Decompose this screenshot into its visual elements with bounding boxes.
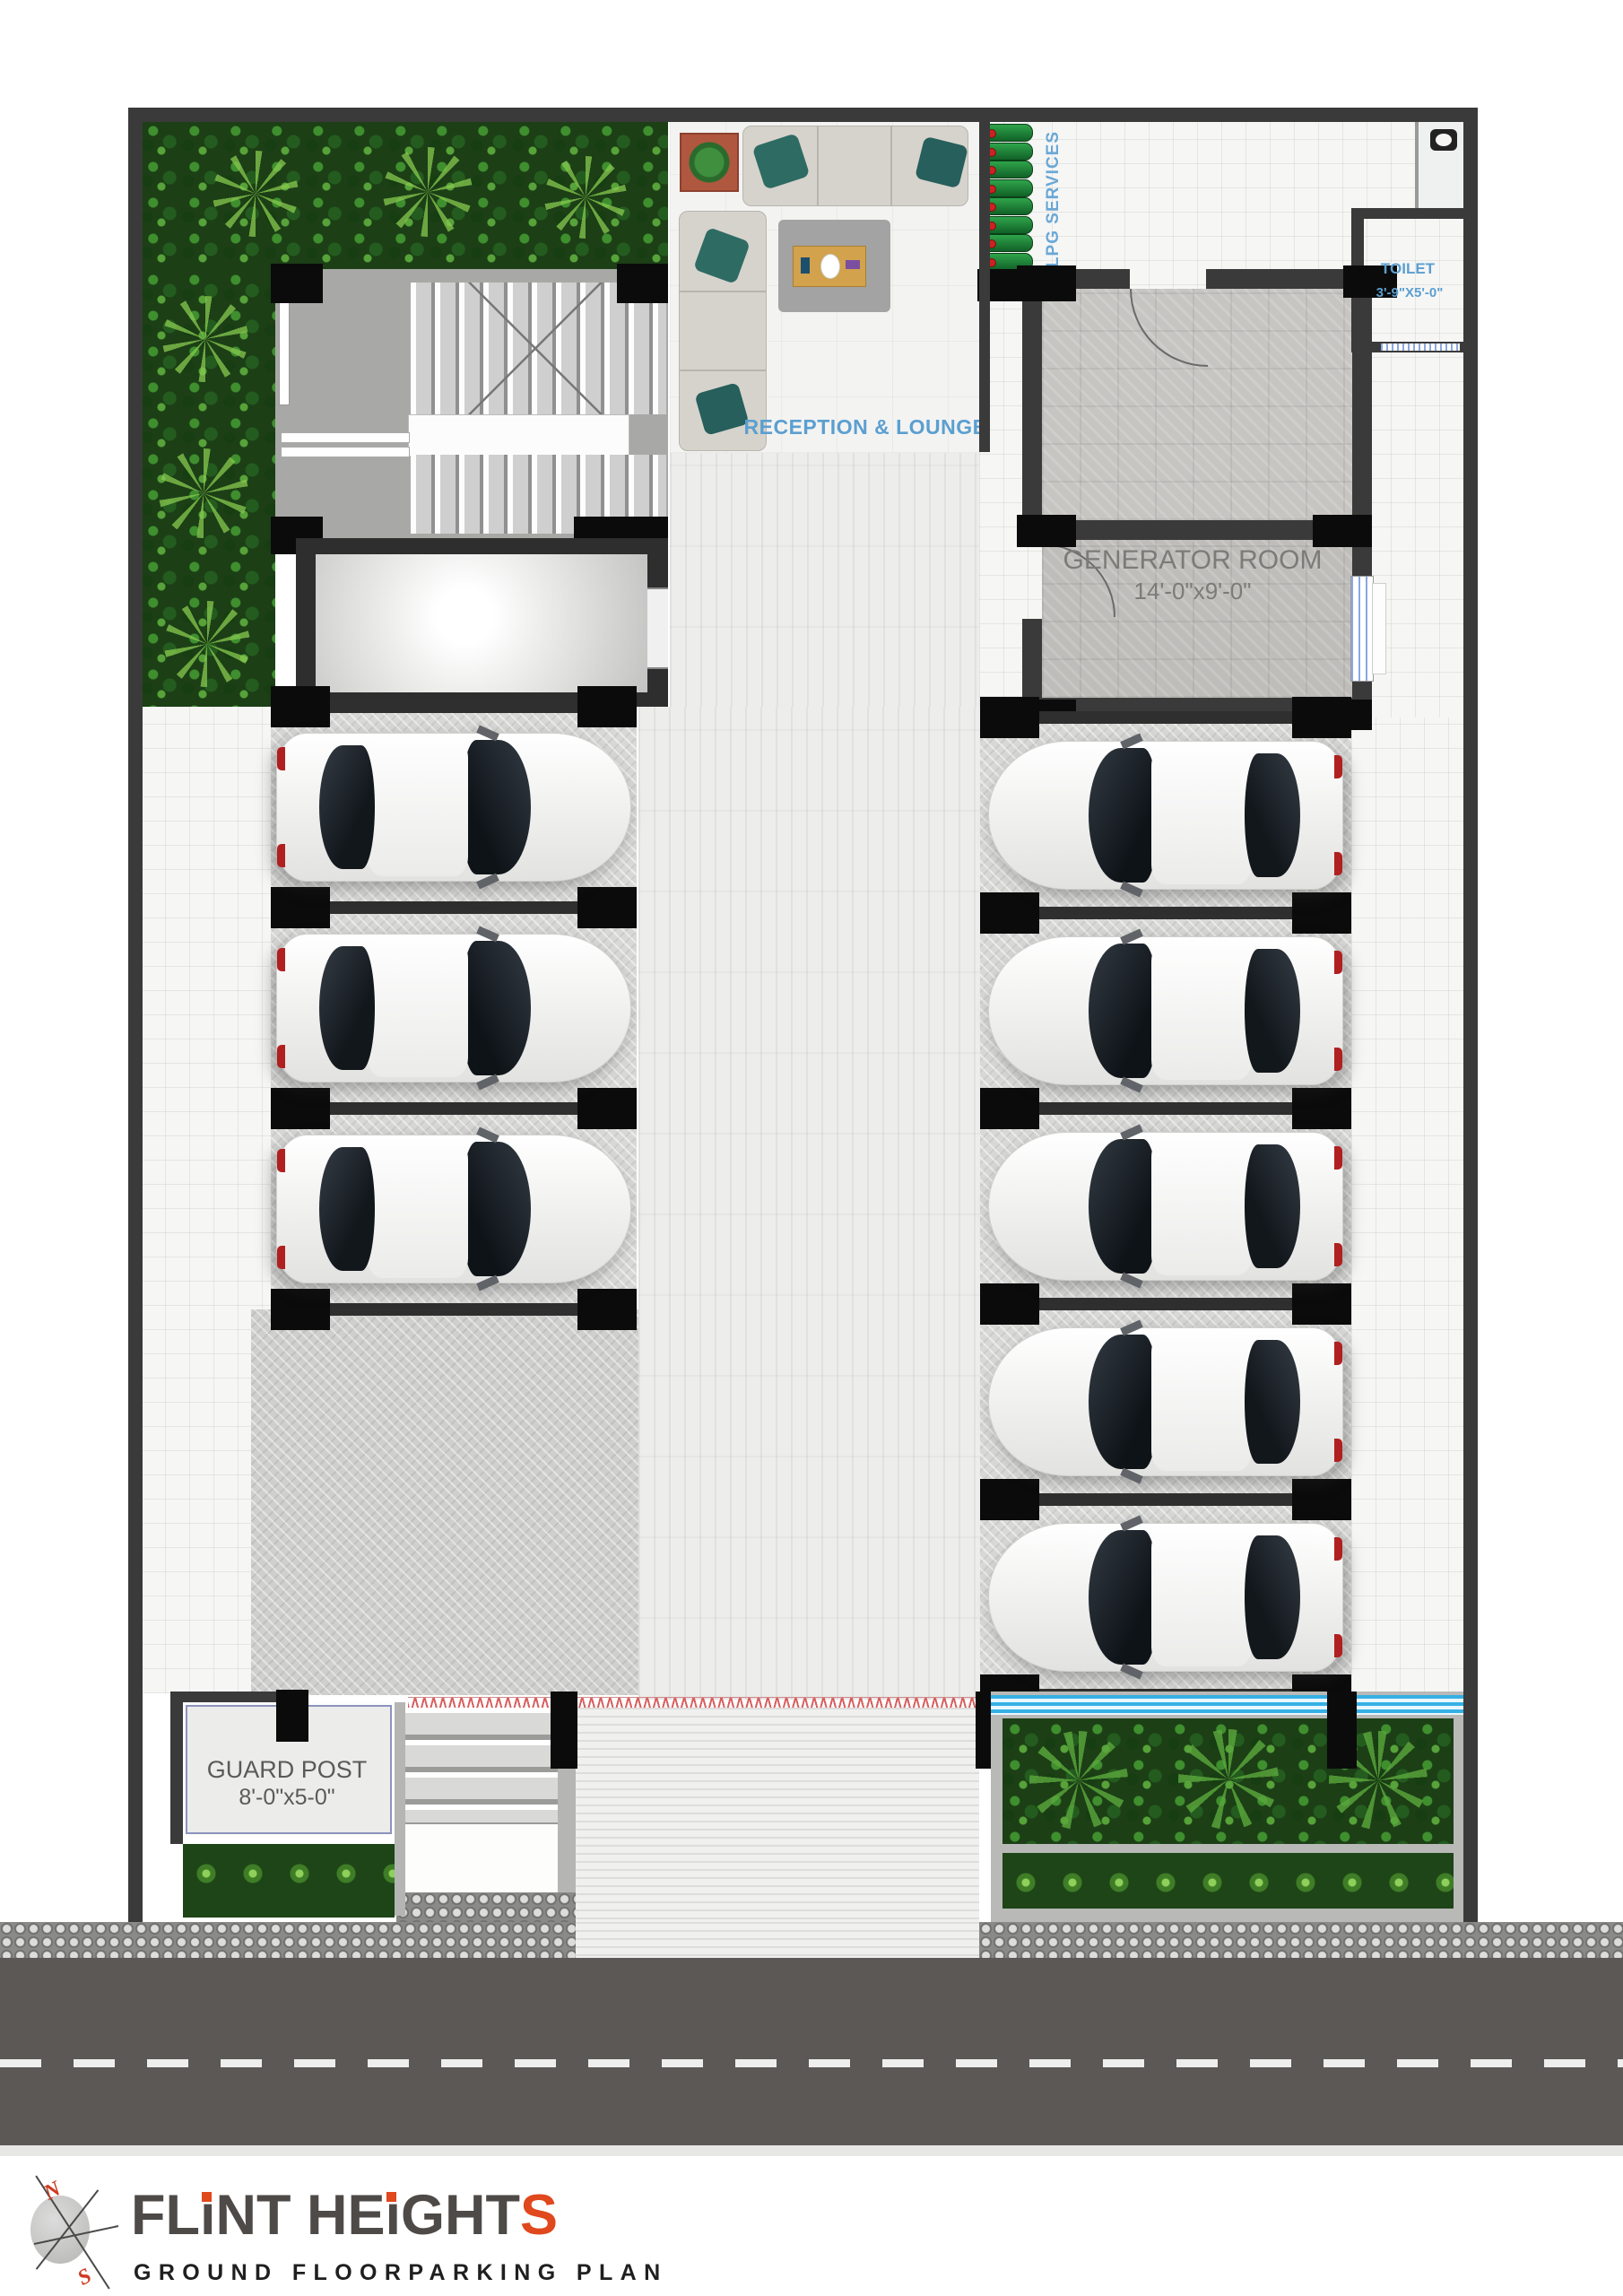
tail-light xyxy=(277,948,285,971)
driveway-upper xyxy=(670,453,979,709)
road xyxy=(0,1958,1623,2145)
stairs-landing xyxy=(408,414,629,457)
cobble-below-steps xyxy=(396,1892,576,1922)
wall xyxy=(979,120,990,452)
column xyxy=(271,1088,330,1129)
tail-light xyxy=(1334,1243,1342,1266)
tail-light xyxy=(1334,755,1342,778)
sidewalk-left xyxy=(0,1922,576,1958)
parking-apron-left xyxy=(251,1309,638,1695)
washbasin-icon xyxy=(1430,129,1457,151)
lpg-cylinder-icon xyxy=(983,234,1033,252)
floor-plan-canvas: RECEPTION & LOUNGE LPG SERVICES GENERATO… xyxy=(0,0,1623,2296)
plant-bed-bottom-right xyxy=(1002,1718,1454,1844)
lpg-cylinder-icon xyxy=(983,216,1033,234)
elevator-cab xyxy=(316,554,647,692)
lpg-cylinder-icon xyxy=(983,197,1033,215)
tail-light xyxy=(1334,1146,1342,1170)
plant-bed-top xyxy=(141,120,668,271)
rear-window xyxy=(1245,1144,1300,1268)
road-edge-strip xyxy=(0,2145,1623,2156)
tail-light xyxy=(1334,1342,1342,1365)
column xyxy=(1017,265,1076,301)
column xyxy=(271,686,330,727)
elevator-door xyxy=(647,587,668,669)
compass-logo: N S xyxy=(23,2169,126,2294)
windshield xyxy=(1089,1530,1159,1665)
lpg-cylinder-icon xyxy=(983,161,1033,178)
parked-car xyxy=(988,1327,1343,1476)
fern-icon xyxy=(159,448,248,538)
fern-icon xyxy=(162,296,248,382)
i-dot-icon xyxy=(202,2192,212,2202)
outer-wall-right xyxy=(1463,108,1478,1922)
ramp-to-road xyxy=(576,1922,979,1958)
pillow xyxy=(752,133,811,190)
compass-south-label: S xyxy=(74,2264,95,2291)
guard-post-side xyxy=(395,1702,405,1916)
plant-bed-left xyxy=(141,269,275,707)
entrance-ramp xyxy=(576,1708,979,1922)
title-part: FL xyxy=(131,2184,200,2247)
basin-bowl xyxy=(1436,134,1452,146)
windshield xyxy=(1089,1335,1159,1469)
column xyxy=(1292,1088,1351,1129)
parked-car xyxy=(276,1135,631,1283)
palm-icon xyxy=(1029,1731,1128,1830)
fern-icon xyxy=(213,151,299,237)
tail-light xyxy=(1334,951,1342,974)
column xyxy=(980,1088,1039,1129)
windshield xyxy=(1089,944,1159,1078)
rear-window xyxy=(1245,1340,1300,1464)
table-item xyxy=(801,257,810,274)
column xyxy=(577,686,637,727)
sofa-top xyxy=(742,126,968,206)
compass-circle xyxy=(30,2196,90,2264)
car-roof xyxy=(368,939,468,1077)
project-title: FLıNT HEıGHTS xyxy=(131,2183,558,2248)
column xyxy=(271,887,330,928)
title-part-orange: S xyxy=(520,2184,558,2247)
toilet-window xyxy=(1381,344,1460,351)
tail-light xyxy=(1334,1048,1342,1071)
parked-car xyxy=(276,934,631,1083)
fern-icon xyxy=(164,601,250,687)
windshield xyxy=(461,1142,531,1276)
rear-window xyxy=(1245,753,1300,877)
windshield xyxy=(461,941,531,1075)
sidewalk-right xyxy=(979,1922,1623,1958)
title-letter-i: ı xyxy=(385,2183,401,2248)
outer-wall-top xyxy=(128,108,1478,122)
column xyxy=(980,892,1039,934)
wall xyxy=(170,1692,280,1702)
title-part: GHT xyxy=(401,2184,520,2247)
palm-icon xyxy=(1178,1729,1279,1830)
column xyxy=(617,264,668,303)
rear-window xyxy=(319,745,375,869)
column xyxy=(980,1283,1039,1325)
rear-window xyxy=(1245,949,1300,1073)
column xyxy=(577,1088,637,1129)
lpg-cylinders xyxy=(983,124,1035,273)
plant-pot xyxy=(680,133,739,192)
pillow xyxy=(915,136,968,189)
tail-light xyxy=(1334,1537,1342,1561)
lpg-label: LPG SERVICES xyxy=(1044,122,1063,276)
reception-label: RECEPTION & LOUNGE xyxy=(744,415,987,439)
column xyxy=(276,1690,308,1742)
reception-lounge xyxy=(670,120,979,453)
elevator-shaft xyxy=(296,538,668,707)
guard-post-label: GUARD POST xyxy=(207,1756,368,1784)
rear-window xyxy=(319,946,375,1070)
column xyxy=(271,1289,330,1330)
car-roof xyxy=(1151,1137,1252,1275)
windshield xyxy=(461,740,531,874)
lpg-cylinder-icon xyxy=(983,124,1033,142)
window-sill xyxy=(1372,583,1386,674)
tail-light xyxy=(277,747,285,770)
step-landing xyxy=(405,1822,558,1894)
car-roof xyxy=(368,738,468,876)
lpg-cylinder-icon xyxy=(983,179,1033,197)
column xyxy=(1292,892,1351,934)
stair-halfwall xyxy=(281,447,410,457)
tail-light xyxy=(277,1246,285,1269)
i-dot-icon xyxy=(386,2192,396,2202)
wall xyxy=(1022,619,1042,707)
car-roof xyxy=(1151,1528,1252,1666)
stairs-cross-brace xyxy=(455,283,616,414)
shrub-row-bottom-right xyxy=(1002,1853,1454,1909)
outer-wall-left xyxy=(128,108,143,1922)
pillow xyxy=(693,227,751,284)
column xyxy=(1313,515,1372,547)
tail-light xyxy=(277,1149,285,1172)
column xyxy=(980,697,1039,738)
windshield xyxy=(1089,748,1159,883)
generator-size: 14'-0"x9'-0" xyxy=(1133,578,1251,605)
paver-strip-right xyxy=(1351,717,1465,1693)
toilet-label: TOILET xyxy=(1381,260,1435,278)
parked-car xyxy=(988,1523,1343,1672)
fern-icon xyxy=(544,156,627,239)
car-roof xyxy=(1151,1333,1252,1471)
column xyxy=(1292,1283,1351,1325)
stair-door-leaf xyxy=(279,296,290,405)
generator-label: GENERATOR ROOM xyxy=(1063,545,1323,576)
table-item xyxy=(820,254,840,279)
stair-halfwall xyxy=(281,432,410,443)
column xyxy=(551,1692,577,1769)
column xyxy=(1327,1692,1357,1769)
parked-car xyxy=(988,1132,1343,1281)
plant-bed-guard-post xyxy=(183,1844,395,1918)
column xyxy=(1017,515,1076,547)
column xyxy=(271,264,323,303)
road-center-line xyxy=(0,2059,1623,2067)
toilet-niche xyxy=(1415,120,1469,208)
table-item xyxy=(846,260,860,269)
column xyxy=(1292,697,1351,738)
parking-column-left xyxy=(271,707,637,1309)
tail-light xyxy=(277,1045,285,1068)
water-strip xyxy=(991,1695,1465,1715)
wall xyxy=(1351,208,1465,219)
column xyxy=(1292,1479,1351,1520)
rear-window xyxy=(1245,1535,1300,1659)
guard-post-size: 8'-0"x5-0" xyxy=(239,1785,334,1811)
tail-light xyxy=(1334,852,1342,875)
lpg-cylinder-icon xyxy=(983,143,1033,161)
wall xyxy=(170,1692,183,1844)
parked-car xyxy=(276,733,631,882)
tail-light xyxy=(277,844,285,867)
windshield xyxy=(1089,1139,1159,1274)
tail-light xyxy=(1334,1634,1342,1657)
fern-icon xyxy=(383,147,473,237)
tail-light xyxy=(1334,1439,1342,1462)
column xyxy=(577,887,637,928)
column xyxy=(980,1479,1039,1520)
column xyxy=(577,1289,637,1330)
title-letter-i: ı xyxy=(200,2183,216,2248)
plan-subtitle: GROUND FLOORPARKING PLAN xyxy=(134,2260,668,2286)
stairwell xyxy=(275,269,668,538)
title-part: NT HE xyxy=(215,2184,385,2247)
wall xyxy=(1022,289,1042,520)
coffee-table xyxy=(793,246,866,287)
parked-car xyxy=(988,741,1343,890)
rear-window xyxy=(319,1147,375,1271)
parked-car xyxy=(988,936,1343,1085)
car-roof xyxy=(368,1140,468,1278)
generator-window xyxy=(1350,576,1374,682)
entry-steps xyxy=(405,1708,558,1892)
pillow xyxy=(694,382,749,436)
car-roof xyxy=(1151,746,1252,884)
toilet-size: 3'-9"X5'-0" xyxy=(1376,285,1444,300)
driveway-central xyxy=(638,707,980,1700)
parking-column-right xyxy=(980,717,1351,1695)
car-roof xyxy=(1151,942,1252,1080)
